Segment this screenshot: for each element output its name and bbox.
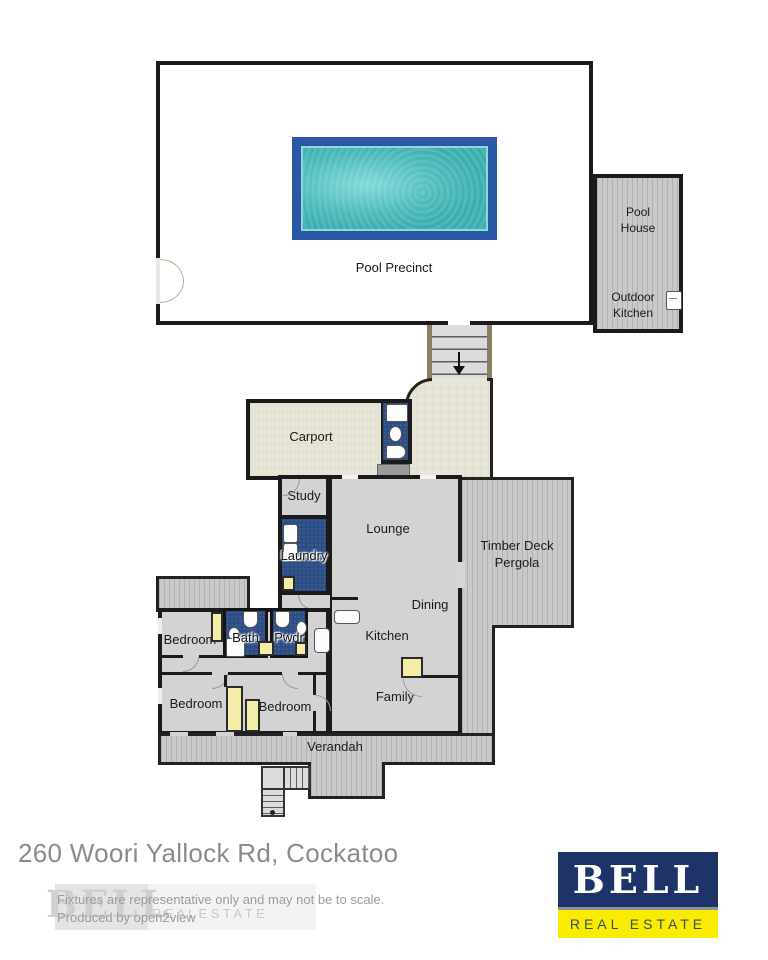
cooktop-icon bbox=[334, 610, 360, 624]
timber-deck-label: Timber Deck Pergola bbox=[465, 538, 569, 572]
lounge-label: Lounge bbox=[338, 521, 438, 538]
window bbox=[342, 475, 358, 479]
door-opening bbox=[457, 562, 465, 588]
outdoor-kitchen-appliance-icon bbox=[666, 291, 682, 310]
vanity-cabinet bbox=[295, 642, 307, 656]
appliance-handle bbox=[669, 298, 677, 299]
pool-precinct-label: Pool Precinct bbox=[334, 260, 454, 277]
bedroom-wall bbox=[313, 675, 316, 695]
hall-wall bbox=[160, 672, 330, 675]
stairs-down-arrow bbox=[453, 366, 465, 375]
kitchen-bench-wall bbox=[328, 597, 358, 600]
logo-tagline: REAL ESTATE bbox=[558, 910, 718, 938]
family-dining-wall bbox=[423, 675, 462, 678]
outdoor-kitchen-label: Outdoor Kitchen bbox=[604, 290, 662, 321]
bedroom2-label: Bedroom bbox=[163, 696, 229, 713]
stairs-landing-cover bbox=[432, 378, 487, 382]
wardrobe bbox=[245, 699, 260, 732]
carport-label: Carport bbox=[256, 429, 366, 446]
verandah-label: Verandah bbox=[280, 739, 390, 756]
washing-machine-icon bbox=[283, 524, 298, 543]
window bbox=[158, 618, 162, 634]
pool-water bbox=[301, 146, 488, 231]
sink-icon bbox=[389, 426, 402, 442]
bedroom3-label: Bedroom bbox=[252, 699, 318, 716]
window bbox=[158, 688, 162, 704]
wardrobe bbox=[211, 612, 223, 642]
logo-brand-name: BELL bbox=[558, 852, 718, 907]
property-address: 260 Woori Yallock Rd, Cockatoo bbox=[18, 838, 398, 869]
disclaimer-line2: Produced by open2view bbox=[57, 910, 196, 925]
stairs-landing bbox=[261, 766, 285, 790]
dining-label: Dining bbox=[399, 597, 461, 614]
kitchen-label: Kitchen bbox=[352, 628, 422, 645]
verandah-extension bbox=[308, 762, 385, 799]
shower-icon bbox=[386, 404, 408, 422]
stairs-end-dot bbox=[270, 810, 275, 815]
disclaimer-line1: Fixtures are representative only and may… bbox=[57, 892, 384, 907]
laundry-label: Laundry bbox=[279, 548, 329, 565]
bell-real-estate-logo: BELL REAL ESTATE bbox=[558, 852, 718, 938]
bedroom-wall bbox=[313, 711, 316, 733]
kitchen-sink-icon bbox=[314, 628, 330, 653]
bedroom-wall bbox=[224, 675, 227, 687]
toilet-icon bbox=[386, 445, 406, 459]
door-opening bbox=[170, 732, 188, 736]
pool-house-label: Pool House bbox=[608, 205, 668, 236]
patio bbox=[405, 378, 493, 480]
wardrobe bbox=[226, 686, 243, 732]
side-deck bbox=[156, 576, 250, 612]
stairs-direction-stem bbox=[458, 352, 460, 367]
window bbox=[420, 475, 436, 479]
stairs-lower-right bbox=[285, 766, 311, 790]
floorplan-page: Pool Precinct Pool House Outdoor Kitchen… bbox=[0, 0, 768, 960]
laundry-cabinet bbox=[282, 576, 295, 591]
pantry-cabinet bbox=[401, 657, 423, 678]
vanity-cabinet bbox=[258, 641, 274, 656]
toilet-icon bbox=[275, 611, 290, 628]
door-opening bbox=[283, 732, 297, 736]
toilet-icon bbox=[243, 611, 258, 628]
pool bbox=[292, 137, 497, 240]
door-opening bbox=[216, 732, 234, 736]
